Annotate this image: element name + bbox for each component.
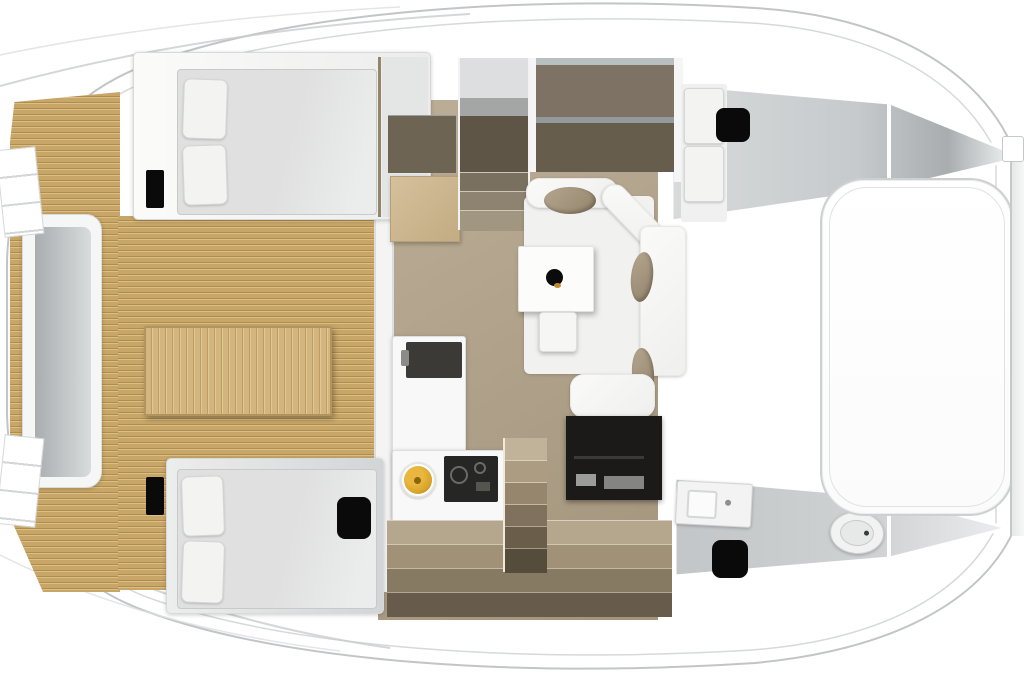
stair-tread	[505, 482, 547, 505]
chart-desk	[390, 176, 460, 242]
dinette-table	[518, 246, 594, 312]
tv-console	[566, 416, 662, 500]
deck-hatch	[712, 540, 748, 578]
floorplan-canvas	[0, 0, 1024, 680]
sink-drain	[414, 477, 421, 484]
pillow	[182, 78, 228, 139]
sofa-cushion	[544, 187, 596, 214]
bow-fitting	[1002, 136, 1024, 162]
stair-tread	[460, 98, 528, 116]
sofa-bench-bottom	[570, 374, 655, 418]
galley-cooktop	[444, 456, 498, 502]
stair-tread	[460, 210, 528, 231]
starboard-aft-cabin	[166, 458, 384, 614]
sideboard	[536, 58, 674, 172]
forward-cabin-bulkhead	[887, 100, 891, 190]
galley-sink	[400, 462, 436, 498]
cabin-door-window	[146, 170, 164, 208]
sideboard-upper	[536, 65, 674, 117]
vanity-sink	[675, 480, 753, 528]
cabin-door-window	[146, 477, 164, 515]
galley-appliance	[406, 342, 462, 378]
headboard-trim	[378, 57, 381, 217]
pillow	[181, 475, 225, 536]
sideboard-rim	[536, 58, 674, 65]
stair-tread	[505, 526, 547, 549]
stairs-starboard-hull	[503, 438, 547, 572]
stair-tread	[505, 548, 547, 573]
stair-tread	[505, 504, 547, 527]
deck-hatch	[337, 497, 371, 539]
port-aft-cabin	[133, 52, 431, 220]
stair-tread	[460, 172, 528, 192]
stair-tread	[505, 460, 547, 483]
bow-crossbeam	[1010, 140, 1024, 536]
bow-sunpad	[820, 178, 1014, 516]
sideboard-lower	[536, 123, 674, 172]
vanity-basin	[686, 490, 717, 520]
toilet-bowl	[839, 519, 875, 547]
berth-cushion	[684, 146, 724, 202]
sunpad-stitch-line	[829, 187, 1005, 507]
pillow	[182, 144, 228, 205]
console-device	[576, 474, 596, 486]
stairs-port-hull	[458, 58, 530, 230]
table-cup-glint	[554, 283, 561, 288]
dinette-stool	[539, 312, 577, 352]
stair-shaft	[460, 116, 528, 172]
burner	[450, 466, 468, 484]
deck-hatch	[716, 108, 750, 142]
cockpit-table	[144, 326, 332, 416]
vanity-faucet	[725, 500, 731, 506]
pillow	[181, 540, 225, 603]
stair-landing	[460, 58, 528, 98]
cooktop-control	[476, 482, 490, 491]
stair-tread	[387, 592, 672, 617]
console-device	[604, 476, 644, 489]
stair-tread	[505, 438, 547, 460]
appliance-handle	[401, 350, 409, 366]
stair-tread	[460, 191, 528, 211]
cabinet-dark	[388, 115, 456, 173]
console-shelf-line	[574, 456, 644, 459]
burner	[474, 462, 486, 474]
